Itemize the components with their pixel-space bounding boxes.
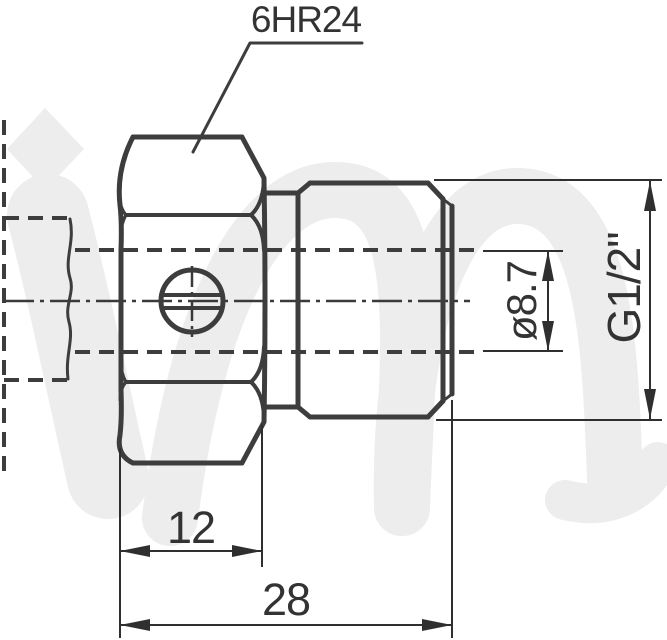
- arrowhead-right: [232, 545, 262, 557]
- watermark-i-stem: [48, 215, 108, 478]
- body-end-chamfer-top: [428, 183, 443, 199]
- arrowhead-thread-bottom: [644, 389, 656, 419]
- arrowhead-left-28: [120, 619, 150, 631]
- hex-size-callout: 6HR24: [193, 0, 362, 152]
- dim-value-bore: ø8.7: [498, 261, 545, 341]
- dim-value-thread: G1/2": [598, 232, 650, 343]
- arrowhead-right-28: [422, 619, 452, 631]
- callout-label: 6HR24: [251, 0, 362, 40]
- dim-value-12: 12: [167, 502, 215, 553]
- arrowhead-thread-top: [644, 181, 656, 211]
- technical-drawing-page: 6HR24 12 28 ø8.7 G1/2": [0, 0, 667, 640]
- dim-value-28: 28: [262, 574, 310, 625]
- dimension-bore-diameter: ø8.7: [483, 251, 563, 351]
- hex-plug-drawing: 6HR24 12 28 ø8.7 G1/2": [0, 0, 667, 640]
- watermark-im-logo: [7, 108, 658, 518]
- arrowhead-left: [120, 545, 150, 557]
